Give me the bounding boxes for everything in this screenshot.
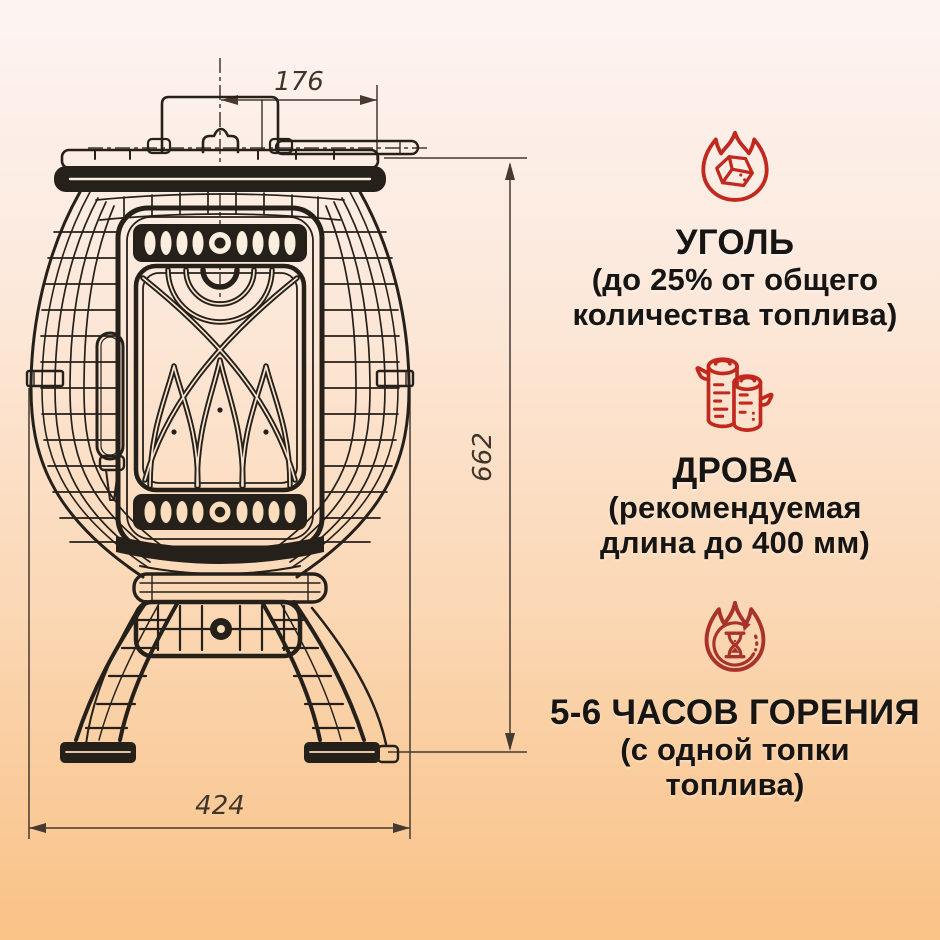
firewood-icon (684, 348, 786, 450)
section-title: 5-6 ЧАСОВ ГОРЕНИЯ (550, 694, 920, 732)
top-plate (54, 150, 386, 192)
section-line: (с одной топки (620, 732, 850, 767)
stove-infographic: 176 662 424 (0, 0, 940, 940)
section-line: (рекомендуемая (608, 490, 861, 525)
section-line: длина до 400 мм) (600, 525, 870, 560)
dimension-label-height: 662 (468, 432, 498, 482)
stove-door (118, 208, 322, 548)
stove-technical-drawing: 176 662 424 (0, 0, 560, 940)
stove (27, 97, 418, 763)
info-section-firewood: ДРОВА (рекомендуемая длина до 400 мм) (528, 348, 940, 560)
section-title: УГОЛЬ (676, 224, 795, 262)
ash-grate (136, 602, 300, 656)
section-line: количества топлива) (573, 297, 898, 332)
top-vent-row (133, 224, 307, 262)
info-section-burn-time: 5-6 ЧАСОВ ГОРЕНИЯ (с одной топки топлива… (528, 594, 940, 802)
section-line: (до 25% от общего (592, 262, 879, 297)
burn-time-icon (686, 594, 784, 692)
vent-knob (215, 238, 226, 249)
section-line: топлива) (666, 767, 805, 802)
dimension-label-top-width: 176 (274, 67, 324, 97)
coal-flame-icon (687, 126, 783, 222)
dimension-label-base-width: 424 (195, 791, 245, 821)
door-window (136, 266, 304, 490)
section-title: ДРОВА (672, 452, 797, 490)
info-section-coal: УГОЛЬ (до 25% от общего количества топли… (528, 126, 940, 332)
bottom-vent-row (133, 494, 307, 530)
